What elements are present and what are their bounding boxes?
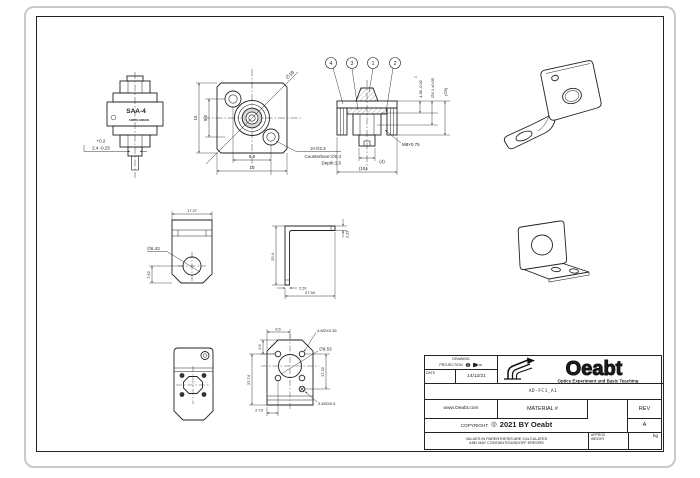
adapter-brand-label: SIMON GREEN [129,118,149,122]
view-plate-dimensioned: 9.5 4.5 22.74 2.79 17.32 ∅9.53 [246,327,337,417]
projection-cell: DRAWING PROJECTION [425,356,498,370]
material-label: MATERIAL # [527,406,558,412]
weight-unit: kg [653,434,658,440]
front-hole-spacing-h: 9.5 [249,154,256,159]
weight-label-2: WEIGHT [591,438,605,442]
view-iso-bracket-top [504,61,601,149]
weight-label-cell: APPROX WEIGHT [588,433,628,449]
front-height-dim: 15 [193,115,198,121]
section-dim-438: 4.38 -0.02 [418,79,423,98]
logo-cell: Oeabt Optics Experiment and Basic Teachi… [498,356,663,384]
front-dia-label: ∅19 [285,70,296,81]
section-dim-61: ∅6.1 ±0.05 [430,77,435,98]
view-bracket-front: ∅6.43 7.62 17.27 [146,208,212,283]
rev-label-cell: REV [628,400,661,419]
projection-symbol-icon [465,362,483,368]
date-label-cell: DATE [425,370,456,384]
section-tol-zero: 0 [414,76,418,78]
plate-note-m3: 3-M3X0.5 [318,401,336,406]
date-value-cell: 14/12/21 [456,370,498,384]
view-section: 4 3 1 2 M8×0.75 [326,58,451,176]
part-number-cell: AD-FC1_A1 [425,384,661,400]
material-cell: MATERIAL # [498,400,588,419]
plate-right-dim: 17.32 [320,366,325,377]
front-note-depth: Depth:1.5 [321,161,341,166]
rev-label: REV [639,406,651,412]
adapter-dim-text: 2.4 -0.25 [92,146,110,151]
bracket-height-dim: 25.4 [270,252,275,261]
balloon-1: 1 [372,61,375,67]
view-iso-bracket-mid [518,221,589,282]
plate-offset-dim: 4.5 [258,344,262,349]
bracket-width-dim: 17.27 [187,208,198,213]
plate-center-dia: ∅9.53 [319,347,332,352]
front-note-holes: 2×∅2.3 [310,146,326,151]
bracket-hole-offset: 7.62 [146,270,151,279]
view-bracket-side: 25.4 2.29 2.29 27.94 [270,219,350,299]
spare-cell [588,400,628,433]
adapter-tolerance-text: +0.2 [97,139,106,144]
projection-label-2: PROJECTION [439,363,462,367]
brand-tagline: Optics Experiment and Basic Teaching [558,378,639,383]
website-cell: www.Oeabt.com [425,400,498,419]
balloon-2: 2 [394,61,397,67]
copyright-value: 2021 BY Oeabt [500,421,552,430]
date-label: DATE [426,371,435,375]
copyright-icon: ◎ [491,422,497,429]
oeabt-logo: Oeabt Optics Experiment and Basic Teachi… [498,356,663,384]
rev-value: A [643,422,647,428]
plate-top-dim: 9.5 [275,327,281,332]
rev-value-cell: A [628,419,661,433]
view-adapter-side: +0.2 2.4 -0.25 SAA-4 SIMON GREEN [84,72,163,178]
balloon-4: 4 [330,61,333,67]
copyright-cell: COPYRIGHT ◎ 2021 BY Oeabt [425,419,588,433]
section-dim-4: (4) [379,159,385,164]
plate-note-m2: 4-M2X0.35 [317,328,337,333]
front-hole-spacing-v: 9.5 [203,114,208,121]
plate-left-dim: 22.74 [246,374,251,385]
bracket-hole-dia: ∅6.43 [147,246,160,251]
disclaimer-cell: VALUES IN PARENTHESIS ARE CALCULATED AND… [425,433,588,449]
front-note-counterbore: Counterbore:∅0.4 [305,154,342,159]
view-front: ∅19 15 9.5 9.5 15 2×∅2.3 Counterbore:∅0.… [193,69,341,175]
website: www.Oeabt.com [444,406,479,412]
title-block: DRAWING PROJECTION DATE 14/12/21 [424,355,662,450]
bracket-depth-dim: 27.94 [305,290,316,295]
section-thread-label: M8×0.75 [402,142,420,147]
disclaimer-line-2: AND MAY CONTAIN ROUNDOFF ERRORS [469,441,544,445]
balloon-3: 3 [351,61,354,67]
view-plate-plain [174,348,213,420]
bracket-logo-icon [504,357,535,379]
adapter-model-label: SAA-4 [126,108,146,115]
weight-unit-cell: kg [628,433,661,449]
front-width-dim: 15 [249,165,255,170]
section-dim-9: (∅9) [443,87,448,96]
brand-wordmark: Oeabt [566,358,623,380]
drawing-sheet: +0.2 2.4 -0.25 SAA-4 SIMON GREEN ∅19 [0,0,700,478]
copyright-label: COPYRIGHT [461,423,488,428]
plate-bottom-dim: 2.79 [255,408,264,413]
date-value: 14/12/21 [467,374,486,380]
part-number: AD-FC1_A1 [529,389,558,394]
section-dim-15: (15) [359,166,368,171]
bracket-thickness-dim: 2.29 [346,231,350,238]
